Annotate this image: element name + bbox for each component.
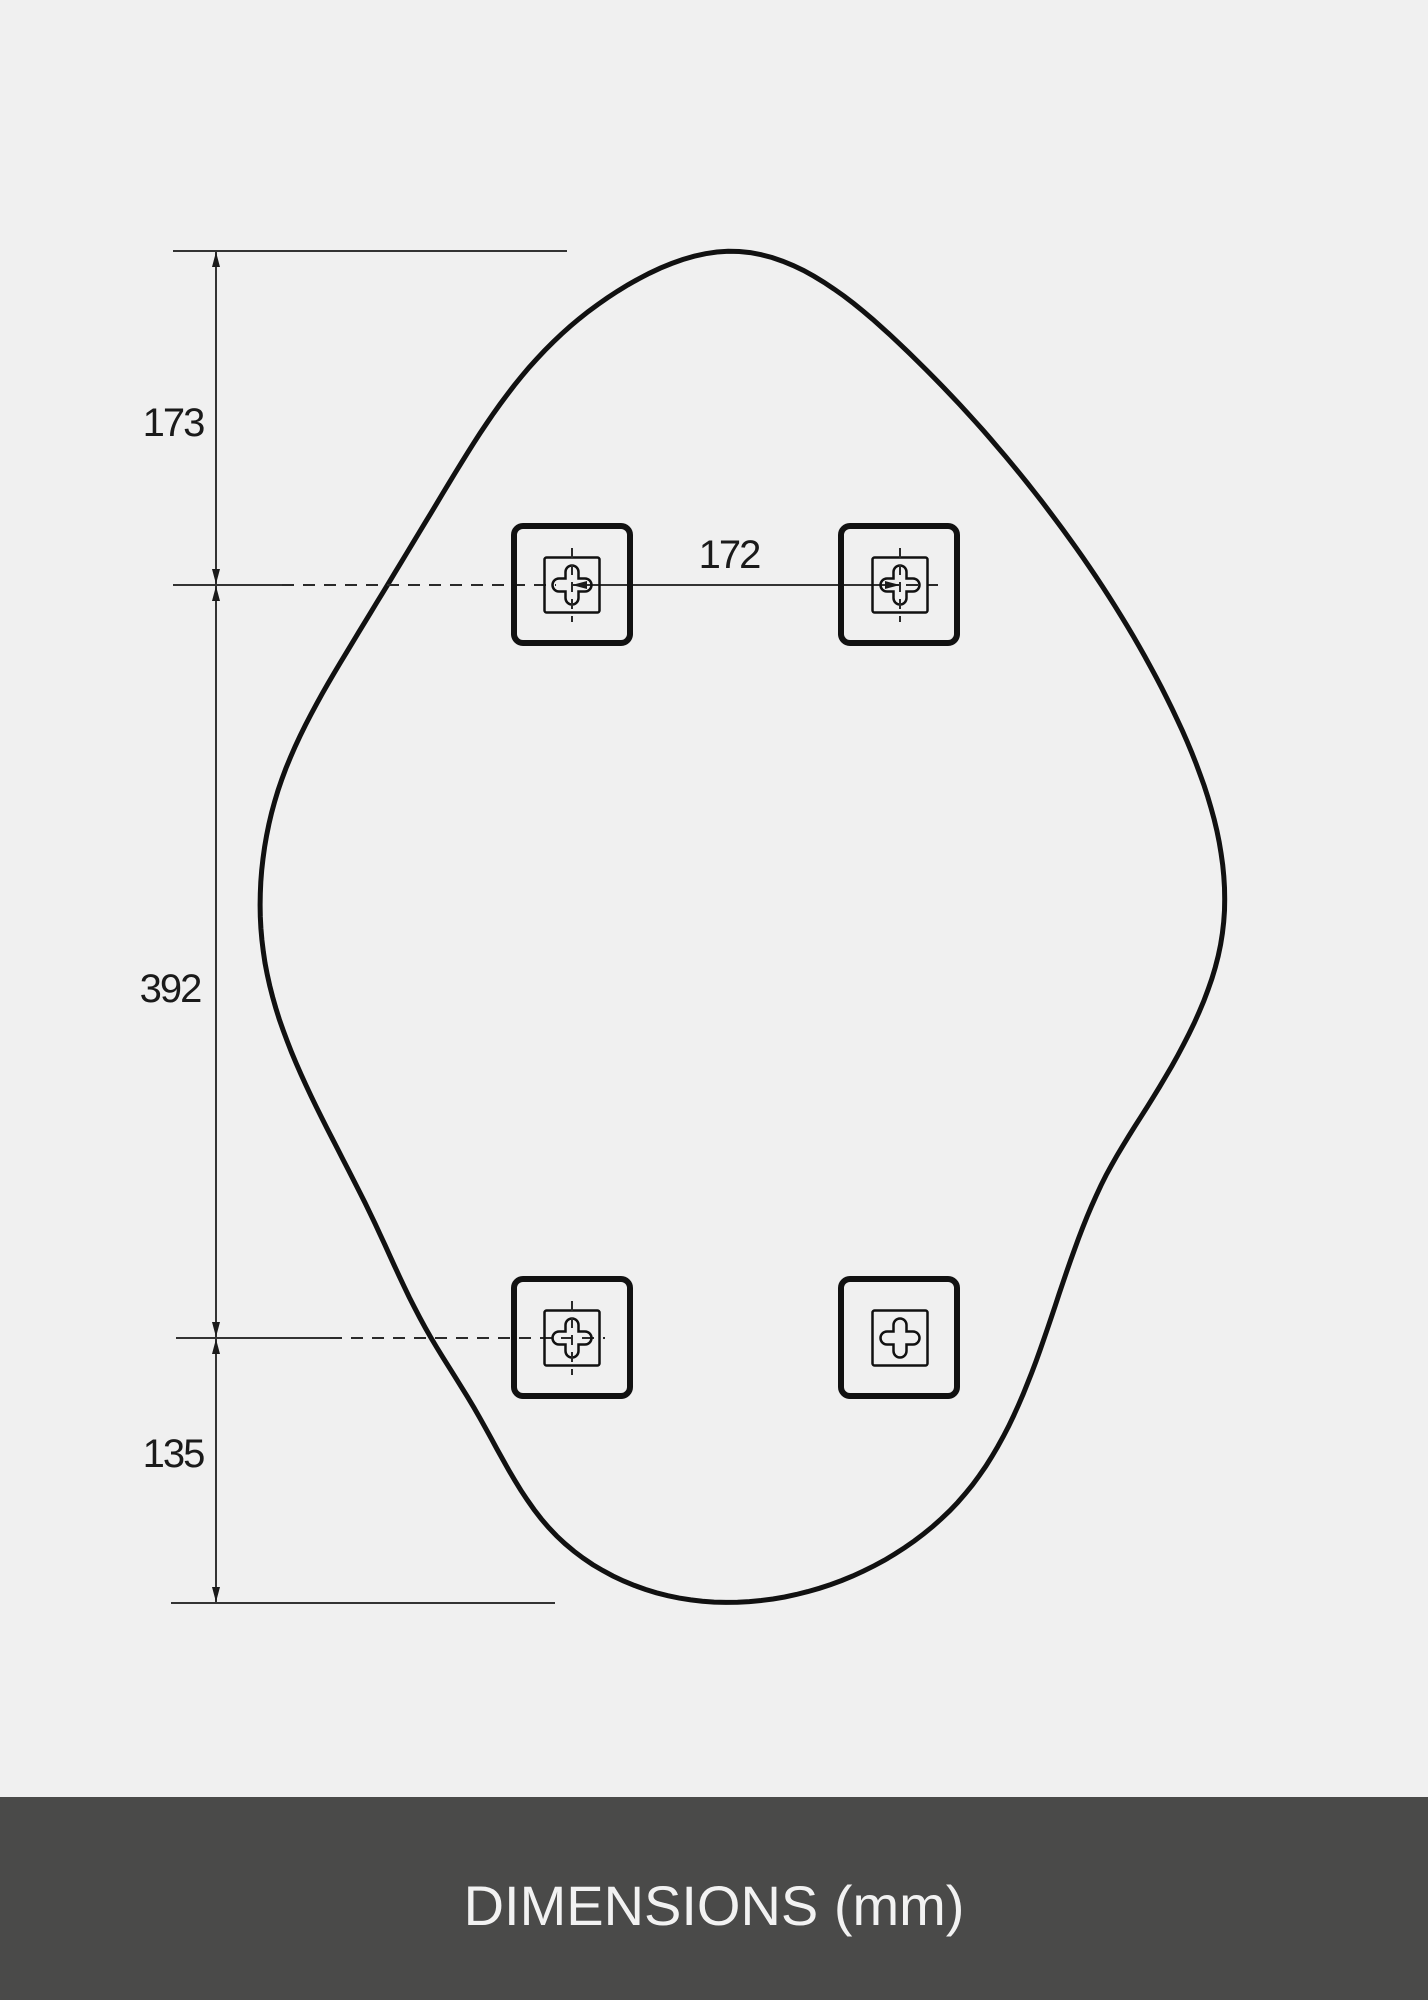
svg-text:172: 172 [699, 533, 760, 577]
svg-text:DIMENSIONS (mm): DIMENSIONS (mm) [464, 1874, 965, 1937]
svg-text:173: 173 [143, 401, 204, 445]
svg-text:392: 392 [140, 967, 201, 1011]
svg-text:135: 135 [143, 1432, 204, 1476]
